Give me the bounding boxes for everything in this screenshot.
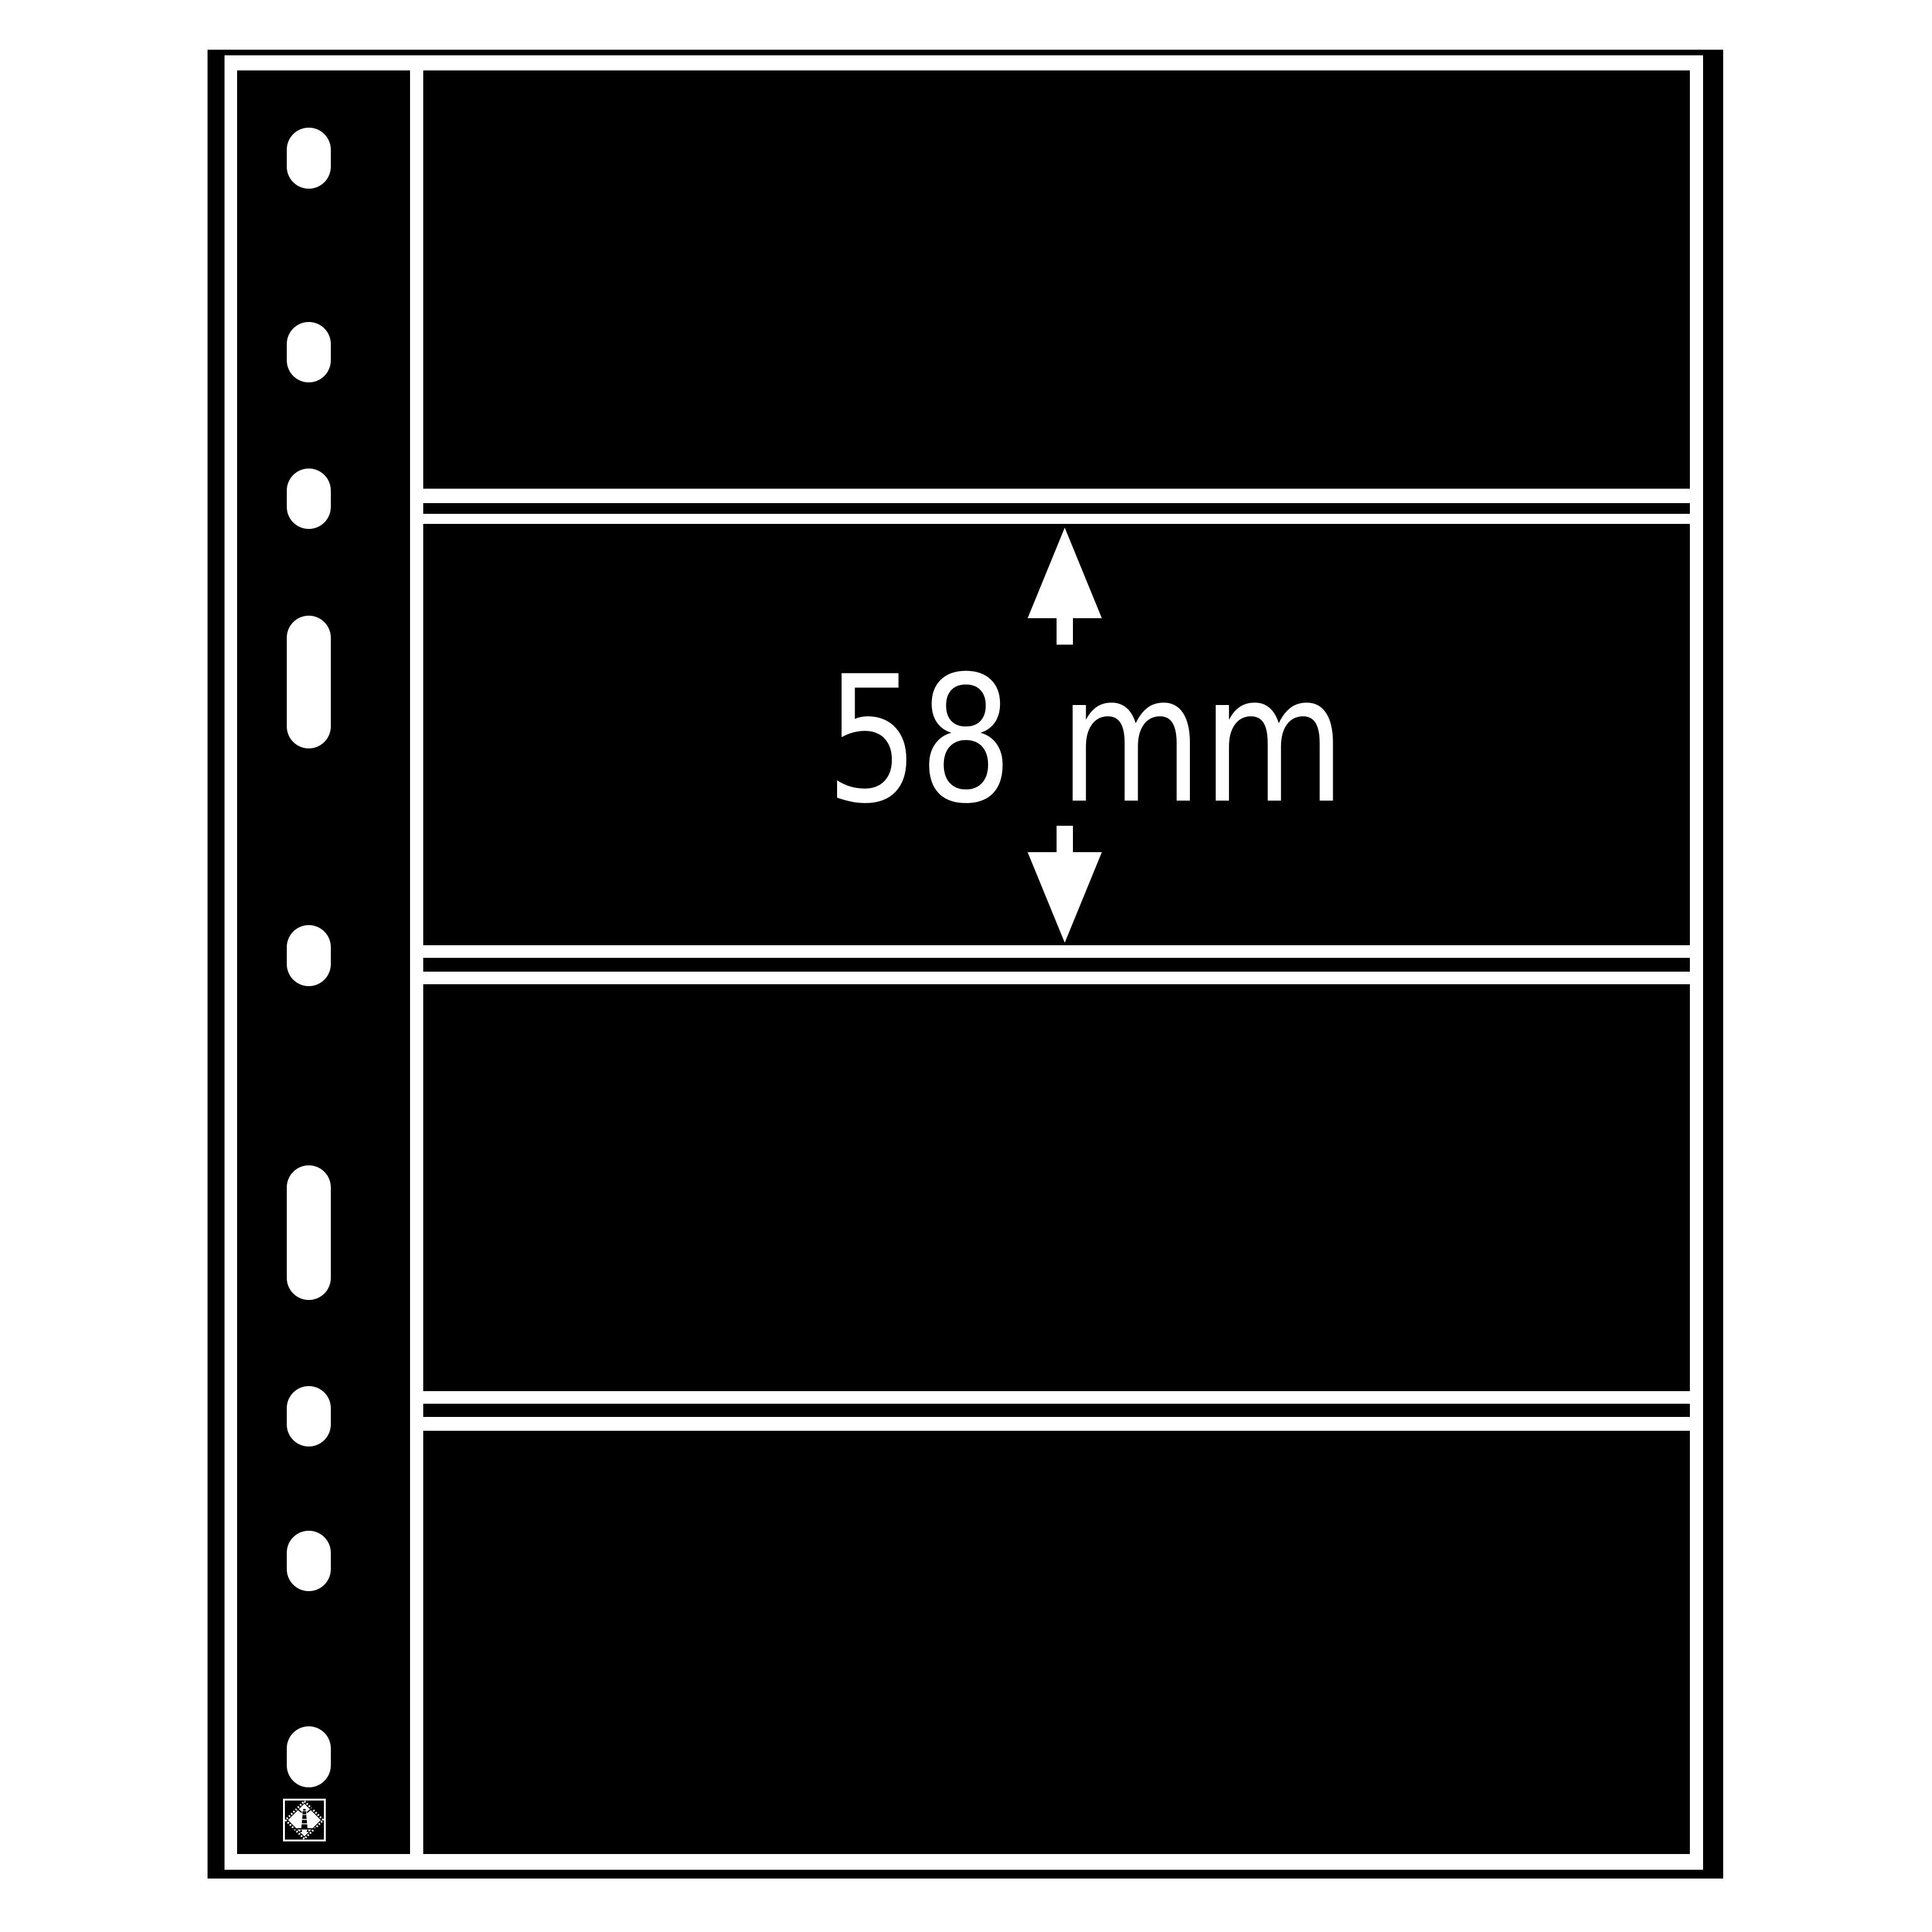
pocket-4 — [423, 1431, 1690, 1854]
sheet-inner-margin: 58 mm — [225, 55, 1703, 1870]
punch-hole — [287, 128, 331, 189]
punch-slot — [287, 1165, 331, 1300]
pocket-2: 58 mm — [423, 524, 1690, 945]
punch-hole — [287, 1531, 331, 1591]
punch-slot — [287, 616, 331, 748]
pocket-seam — [423, 503, 1690, 514]
lighthouse-logo-icon — [283, 1799, 326, 1841]
pocket-seam — [423, 1404, 1690, 1417]
product-image: 58 mm — [0, 0, 1932, 1932]
binder-strip — [237, 70, 410, 1854]
stock-sheet: 58 mm — [208, 50, 1723, 1879]
pocket-seam — [423, 958, 1690, 972]
pocket-3 — [423, 984, 1690, 1391]
pocket-1 — [423, 70, 1690, 489]
punch-hole — [287, 1386, 331, 1446]
punch-hole — [287, 322, 331, 382]
arrow-down-icon — [1028, 826, 1102, 943]
punch-hole — [287, 925, 331, 986]
arrow-up-icon — [1028, 528, 1102, 645]
punch-hole — [287, 1726, 331, 1787]
measurement-text: 58 mm — [826, 653, 1345, 828]
punch-hole — [287, 469, 331, 529]
measurement-label: 58 mm — [826, 653, 1343, 828]
